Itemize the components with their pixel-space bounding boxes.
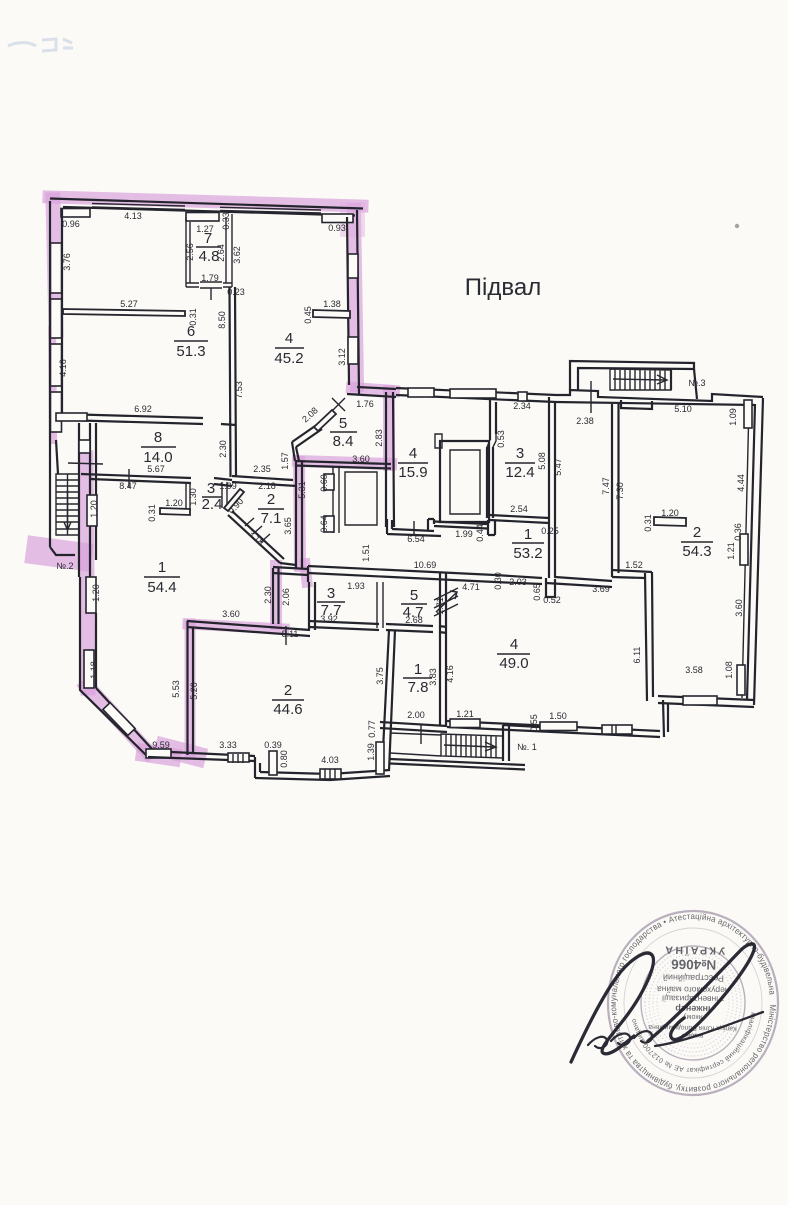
svg-text:7.8: 7.8 <box>408 679 429 696</box>
svg-text:54.4: 54.4 <box>147 579 176 596</box>
svg-text:1.99: 1.99 <box>455 529 473 539</box>
svg-text:1.20: 1.20 <box>165 498 183 508</box>
svg-text:2.4: 2.4 <box>202 496 223 513</box>
svg-text:1.27: 1.27 <box>196 224 214 234</box>
svg-text:0.52: 0.52 <box>543 595 561 605</box>
svg-text:1.20: 1.20 <box>661 508 679 518</box>
svg-text:2.30: 2.30 <box>263 586 273 604</box>
svg-text:0.45: 0.45 <box>303 306 313 324</box>
svg-text:1.18: 1.18 <box>89 661 99 679</box>
svg-text:2.54: 2.54 <box>510 504 528 514</box>
svg-text:2.83: 2.83 <box>374 429 384 447</box>
svg-text:8.4: 8.4 <box>333 433 354 450</box>
svg-text:53.2: 53.2 <box>513 545 542 562</box>
svg-text:8.50: 8.50 <box>217 311 227 329</box>
svg-text:12.4: 12.4 <box>505 464 534 481</box>
svg-text:4: 4 <box>409 445 417 462</box>
svg-text:3.33: 3.33 <box>219 740 237 750</box>
svg-text:1.08: 1.08 <box>724 661 734 679</box>
svg-text:4.71: 4.71 <box>462 582 480 592</box>
svg-text:1.30: 1.30 <box>188 488 198 506</box>
svg-text:4.13: 4.13 <box>124 211 142 221</box>
svg-text:1: 1 <box>414 661 422 678</box>
svg-text:1.99: 1.99 <box>219 481 237 491</box>
svg-text:6.54: 6.54 <box>407 534 425 544</box>
svg-text:6.11: 6.11 <box>632 647 642 664</box>
svg-text:0.31: 0.31 <box>188 308 198 326</box>
svg-text:4.16: 4.16 <box>445 665 455 683</box>
svg-text:3.76: 3.76 <box>62 253 72 271</box>
svg-text:1.09: 1.09 <box>728 408 738 426</box>
svg-text:3.69: 3.69 <box>592 584 610 594</box>
svg-text:5.10: 5.10 <box>674 404 692 414</box>
svg-text:7.53: 7.53 <box>234 381 244 399</box>
svg-text:Підвал: Підвал <box>465 274 541 301</box>
svg-text:5: 5 <box>410 587 418 604</box>
svg-text:2.64: 2.64 <box>216 244 226 262</box>
svg-text:1.21: 1.21 <box>726 542 736 560</box>
svg-text:№.3: №.3 <box>688 378 705 388</box>
svg-text:7.30: 7.30 <box>615 482 625 500</box>
svg-text:5.47: 5.47 <box>553 458 563 476</box>
svg-text:2: 2 <box>284 682 292 699</box>
svg-text:2: 2 <box>267 491 275 508</box>
svg-text:1.20: 1.20 <box>89 500 99 518</box>
svg-text:1.79: 1.79 <box>201 273 219 283</box>
svg-text:2.30: 2.30 <box>218 440 228 458</box>
svg-text:3.58: 3.58 <box>685 665 703 675</box>
svg-text:0.31: 0.31 <box>643 514 653 532</box>
svg-text:8: 8 <box>154 429 162 446</box>
svg-text:0.93: 0.93 <box>328 223 346 233</box>
svg-text:4: 4 <box>510 636 518 653</box>
svg-text:5.27: 5.27 <box>120 299 138 309</box>
svg-text:2.35: 2.35 <box>253 464 271 474</box>
svg-text:3: 3 <box>516 445 524 462</box>
svg-text:3.75: 3.75 <box>375 667 385 685</box>
svg-text:2.56: 2.56 <box>185 243 195 261</box>
svg-text:2.38: 2.38 <box>576 416 594 426</box>
svg-text:0.65: 0.65 <box>532 583 542 601</box>
svg-text:нерухомого майна: нерухомого майна <box>657 984 730 995</box>
svg-text:№4066: №4066 <box>671 957 717 973</box>
svg-text:№. 1: №. 1 <box>517 742 537 752</box>
svg-text:1.71: 1.71 <box>435 597 445 615</box>
svg-text:4.44: 4.44 <box>736 474 746 492</box>
svg-text:0.96: 0.96 <box>62 219 80 229</box>
svg-text:3.65: 3.65 <box>283 517 293 535</box>
svg-text:7.1: 7.1 <box>261 510 282 527</box>
svg-text:1: 1 <box>158 559 166 576</box>
svg-text:54.3: 54.3 <box>682 543 711 560</box>
svg-text:8.11: 8.11 <box>282 629 299 639</box>
svg-text:3: 3 <box>327 585 335 602</box>
svg-text:10.69: 10.69 <box>414 560 437 570</box>
svg-text:3.60: 3.60 <box>352 454 370 464</box>
svg-text:2: 2 <box>693 524 701 541</box>
svg-text:4: 4 <box>285 330 293 347</box>
svg-text:5.67: 5.67 <box>147 464 165 474</box>
svg-text:1.38: 1.38 <box>323 299 341 309</box>
svg-text:0.23: 0.23 <box>227 287 245 297</box>
svg-text:6.92: 6.92 <box>134 404 152 414</box>
svg-text:2.00: 2.00 <box>407 710 425 720</box>
svg-text:49.0: 49.0 <box>499 655 528 672</box>
svg-text:1.39: 1.39 <box>366 743 376 761</box>
svg-text:1.52: 1.52 <box>625 560 643 570</box>
svg-text:УКРАЇНА: УКРАЇНА <box>663 943 725 957</box>
svg-text:0.44: 0.44 <box>475 524 485 542</box>
svg-text:0.80: 0.80 <box>279 750 289 768</box>
svg-text:5.08: 5.08 <box>537 452 547 470</box>
svg-text:1: 1 <box>524 526 532 543</box>
svg-text:0.30: 0.30 <box>493 572 503 590</box>
svg-text:9.59: 9.59 <box>152 740 170 750</box>
svg-text:3.60: 3.60 <box>222 609 240 619</box>
svg-text:2.06: 2.06 <box>281 588 291 606</box>
svg-text:45.2: 45.2 <box>274 350 303 367</box>
svg-text:5.31: 5.31 <box>297 481 307 499</box>
svg-text:№.2: №.2 <box>56 561 73 571</box>
svg-text:2.34: 2.34 <box>513 401 531 411</box>
svg-text:5.20: 5.20 <box>189 682 199 700</box>
svg-text:3.92: 3.92 <box>320 614 338 624</box>
svg-text:1.21: 1.21 <box>456 709 474 719</box>
svg-text:0.25: 0.25 <box>541 526 559 536</box>
svg-text:3.83: 3.83 <box>428 668 438 686</box>
svg-text:0.36: 0.36 <box>733 523 743 541</box>
svg-text:1.93: 1.93 <box>347 581 365 591</box>
svg-text:1.51: 1.51 <box>361 544 371 562</box>
svg-text:0.31: 0.31 <box>147 504 157 522</box>
svg-text:8.47: 8.47 <box>119 481 137 491</box>
svg-text:0.39: 0.39 <box>264 740 282 750</box>
svg-text:1.76: 1.76 <box>356 399 374 409</box>
svg-text:3.60: 3.60 <box>734 599 744 617</box>
svg-text:3: 3 <box>207 480 215 497</box>
svg-text:0.33: 0.33 <box>221 212 231 230</box>
svg-text:2.18: 2.18 <box>258 481 276 491</box>
svg-text:4.03: 4.03 <box>321 755 339 765</box>
svg-text:0.53: 0.53 <box>496 430 506 448</box>
svg-text:3.62: 3.62 <box>232 246 242 264</box>
svg-text:44.6: 44.6 <box>273 701 302 718</box>
svg-text:51.3: 51.3 <box>176 343 205 360</box>
svg-text:0.55: 0.55 <box>529 714 539 732</box>
svg-text:2.68: 2.68 <box>405 615 423 625</box>
svg-text:3.12: 3.12 <box>337 348 347 366</box>
svg-text:2.03: 2.03 <box>509 577 527 587</box>
svg-text:1.20: 1.20 <box>91 584 101 602</box>
svg-text:1.57: 1.57 <box>280 452 290 470</box>
svg-text:0.64: 0.64 <box>319 515 329 533</box>
svg-text:0.77: 0.77 <box>367 720 377 738</box>
svg-text:5: 5 <box>339 415 347 432</box>
svg-text:5.53: 5.53 <box>171 680 181 698</box>
svg-text:4.16: 4.16 <box>58 359 68 377</box>
svg-text:0.60: 0.60 <box>319 474 329 492</box>
svg-text:7.47: 7.47 <box>601 477 611 495</box>
svg-text:1.50: 1.50 <box>549 711 567 721</box>
svg-text:15.9: 15.9 <box>398 464 427 481</box>
